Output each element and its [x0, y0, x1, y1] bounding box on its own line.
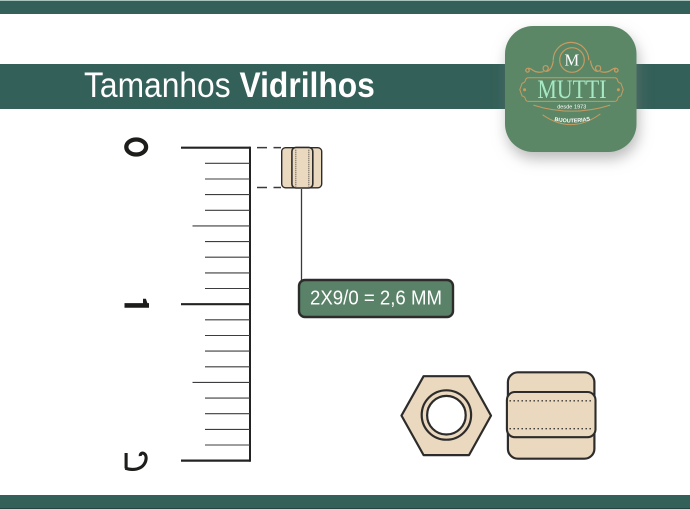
svg-text:2X9/0 = 2,6 MM: 2X9/0 = 2,6 MM: [310, 288, 442, 310]
svg-text:M: M: [564, 51, 579, 70]
svg-text:MUTTI: MUTTI: [538, 75, 607, 104]
svg-text:desde 1973: desde 1973: [557, 105, 586, 111]
